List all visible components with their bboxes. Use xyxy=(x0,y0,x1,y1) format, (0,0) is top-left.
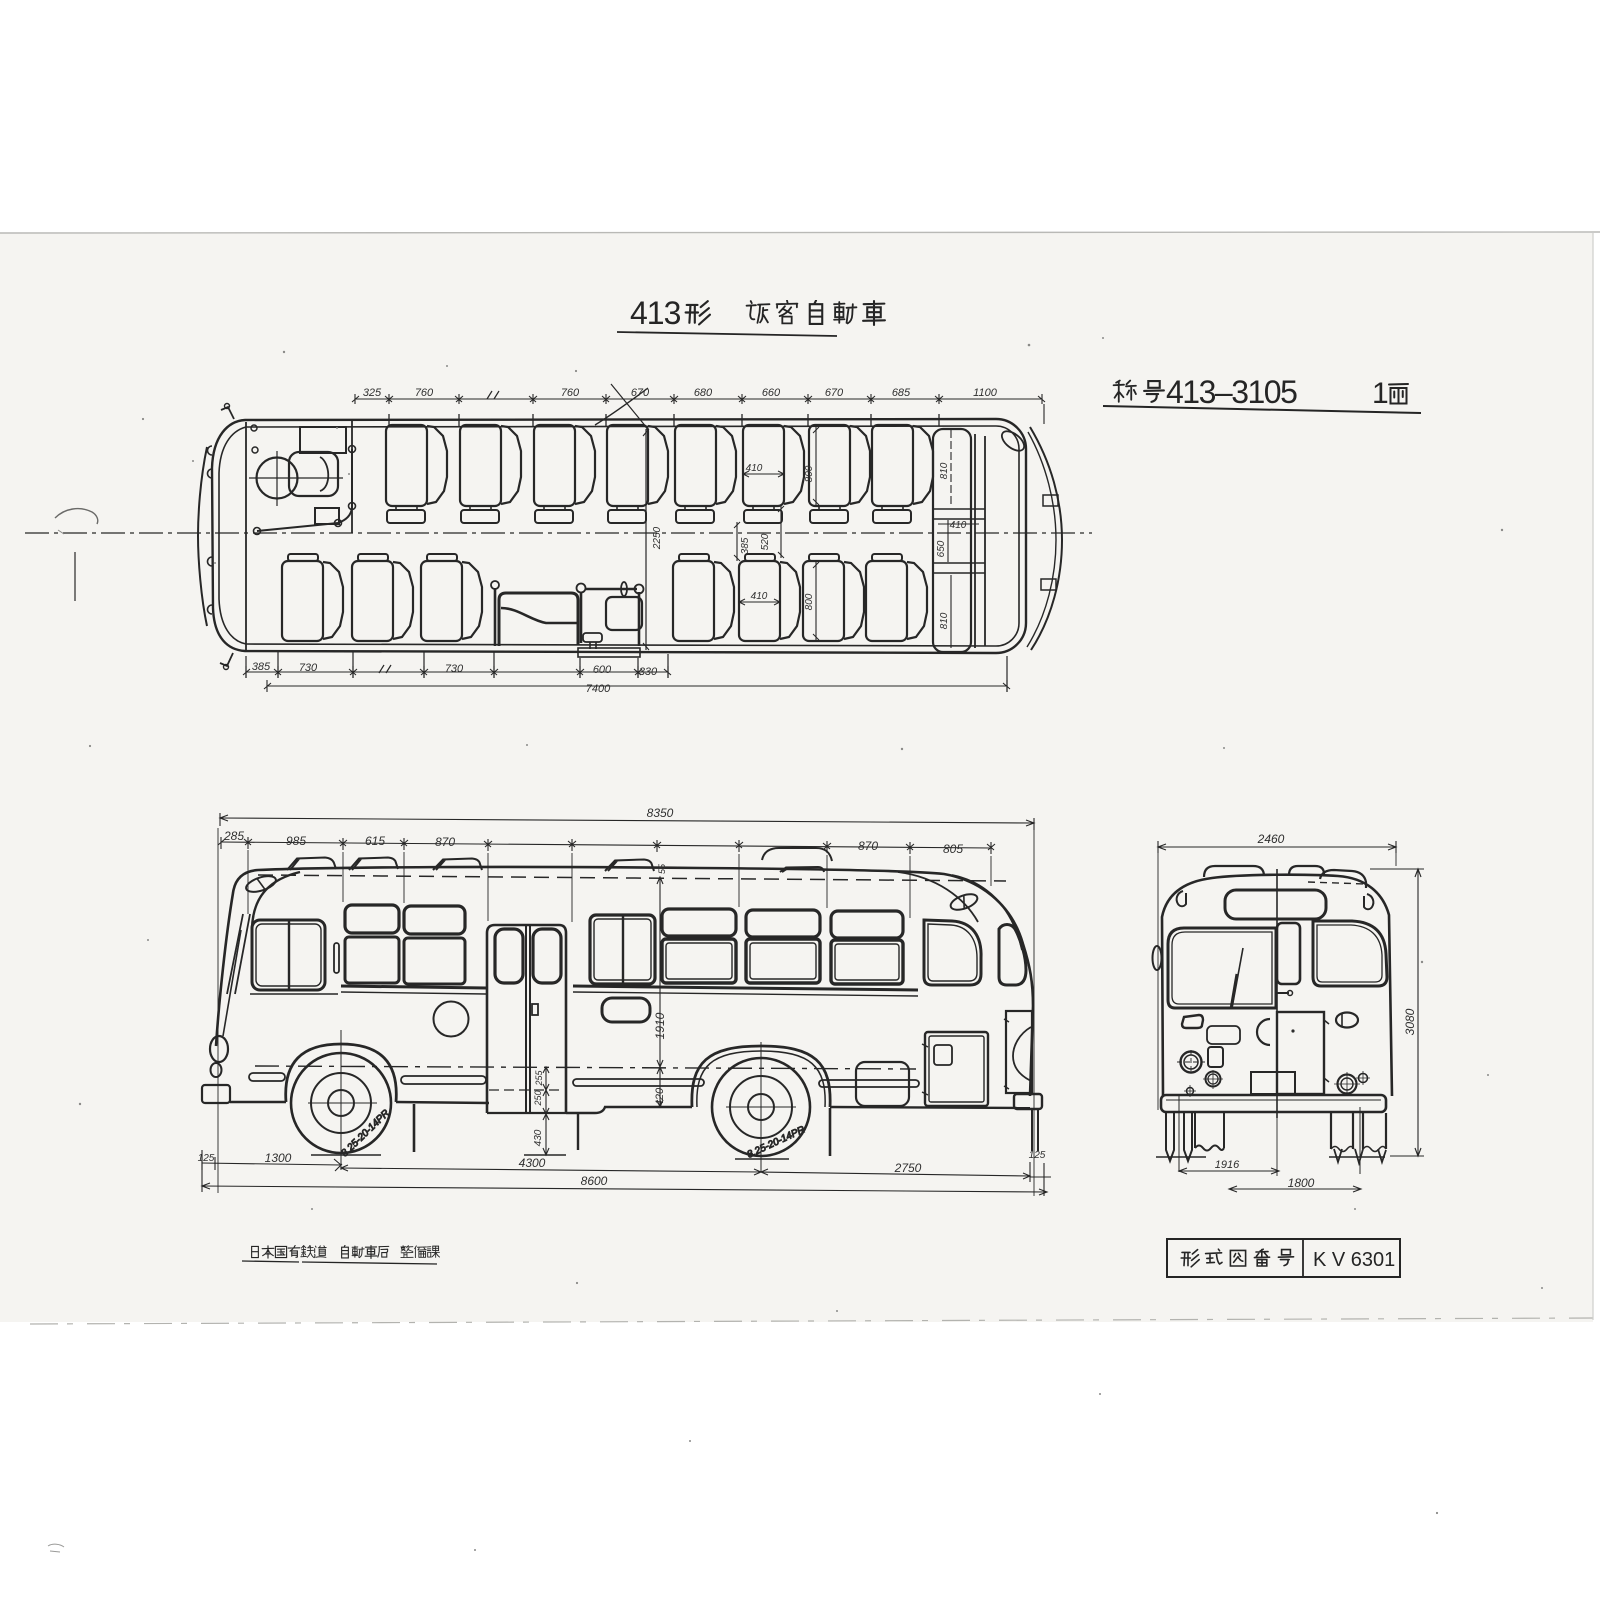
svg-text:985: 985 xyxy=(286,834,306,848)
svg-text:870: 870 xyxy=(858,839,878,853)
svg-text:520: 520 xyxy=(760,533,771,550)
svg-text:125: 125 xyxy=(1029,1150,1046,1161)
svg-text:3080: 3080 xyxy=(1403,1008,1417,1035)
svg-text:55: 55 xyxy=(657,863,667,874)
svg-text:285: 285 xyxy=(223,829,244,843)
svg-text:615: 615 xyxy=(365,834,385,848)
svg-text:2750: 2750 xyxy=(894,1161,922,1175)
svg-text:430: 430 xyxy=(533,1129,544,1146)
svg-text:325: 325 xyxy=(363,387,382,399)
svg-text:8350: 8350 xyxy=(647,806,674,820)
svg-text:410: 410 xyxy=(950,520,967,531)
svg-text:385: 385 xyxy=(252,661,271,673)
svg-text:1: 1 xyxy=(1372,377,1389,410)
svg-text:805: 805 xyxy=(943,842,963,856)
svg-text:385: 385 xyxy=(740,537,751,554)
svg-text:1800: 1800 xyxy=(1288,1176,1315,1190)
svg-text:250: 250 xyxy=(533,1090,543,1106)
svg-text:680: 680 xyxy=(694,387,713,399)
svg-text:413–3105: 413–3105 xyxy=(1166,374,1297,410)
svg-text:413: 413 xyxy=(630,295,681,331)
svg-text:650: 650 xyxy=(936,540,947,557)
svg-text:800: 800 xyxy=(804,465,815,482)
svg-text:660: 660 xyxy=(762,387,781,399)
svg-text:2460: 2460 xyxy=(1257,832,1285,846)
svg-text:K V 6301: K V 6301 xyxy=(1313,1249,1395,1271)
svg-text:255: 255 xyxy=(534,1070,544,1087)
svg-text:330: 330 xyxy=(639,666,658,678)
svg-text:410: 410 xyxy=(746,463,763,474)
svg-text:685: 685 xyxy=(892,387,911,399)
svg-text:800: 800 xyxy=(804,593,815,610)
svg-text:810: 810 xyxy=(939,462,950,479)
svg-text:730: 730 xyxy=(445,663,464,675)
svg-text:870: 870 xyxy=(435,835,455,849)
svg-text:760: 760 xyxy=(561,387,580,399)
svg-text:1910: 1910 xyxy=(653,1012,667,1039)
svg-text:1916: 1916 xyxy=(1215,1159,1240,1171)
svg-text:8600: 8600 xyxy=(581,1174,608,1188)
svg-text:4300: 4300 xyxy=(519,1156,546,1170)
svg-text:810: 810 xyxy=(939,612,950,629)
svg-text:760: 760 xyxy=(415,387,434,399)
svg-text:670: 670 xyxy=(825,387,844,399)
svg-text:670: 670 xyxy=(631,387,650,399)
svg-text:125: 125 xyxy=(198,1153,215,1164)
svg-text:1300: 1300 xyxy=(265,1151,292,1165)
svg-text:420: 420 xyxy=(654,1087,666,1106)
svg-text:600: 600 xyxy=(593,664,612,676)
svg-text:410: 410 xyxy=(751,591,768,602)
svg-text:1100: 1100 xyxy=(973,387,998,399)
svg-text:730: 730 xyxy=(299,662,318,674)
svg-text:7400: 7400 xyxy=(586,683,611,695)
svg-text:2250: 2250 xyxy=(652,526,663,550)
